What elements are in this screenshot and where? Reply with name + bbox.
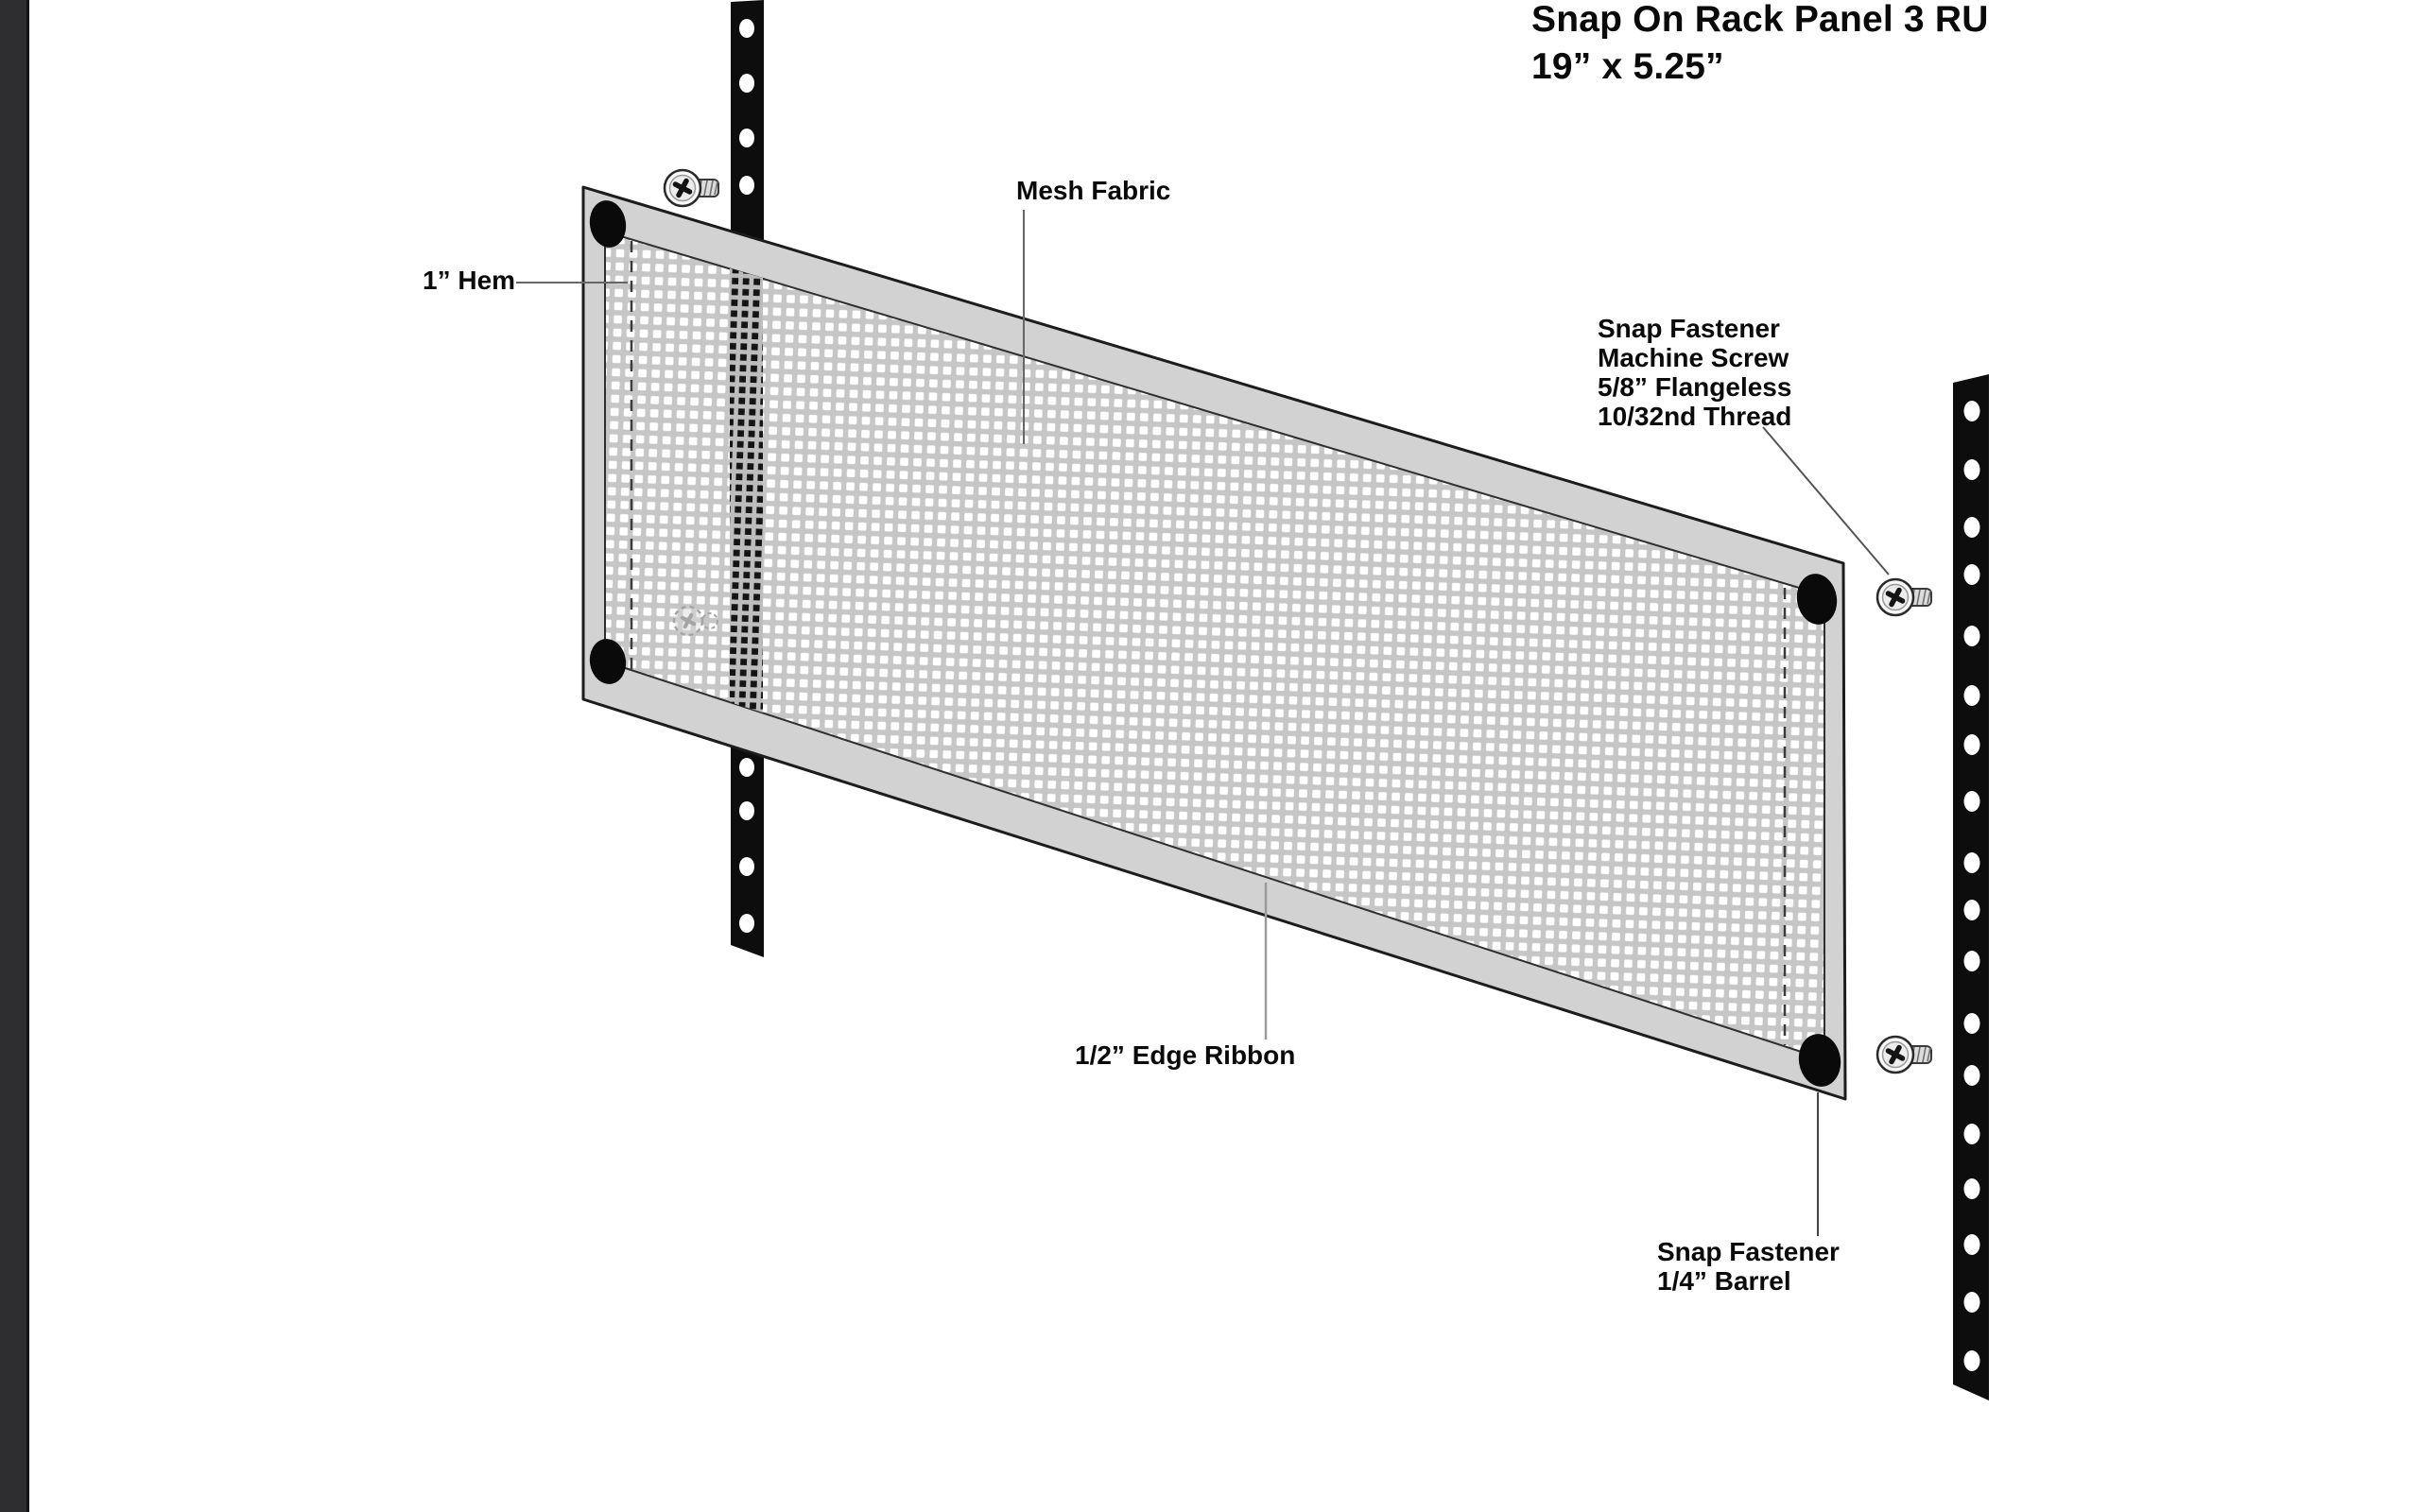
label-mesh-fabric: Mesh Fabric xyxy=(1016,176,1170,205)
rail-through-mesh xyxy=(730,268,763,713)
right-rack-rail xyxy=(1953,374,1989,1400)
machine-screw-right-bottom-icon xyxy=(1877,1037,1931,1073)
label-edge-ribbon: 1/2” Edge Ribbon xyxy=(1075,1040,1295,1070)
machine-screw-right-top-icon xyxy=(1877,579,1931,615)
machine-screw-top-left-icon xyxy=(665,170,718,206)
label-hem: 1” Hem xyxy=(423,266,515,295)
rack-panel-diagram xyxy=(0,0,2420,1512)
diagram-title: Snap On Rack Panel 3 RU 19” x 5.25” xyxy=(1531,0,1989,91)
label-snap-fastener-barrel: Snap Fastener 1/4” Barrel xyxy=(1657,1237,1840,1296)
diagram-stage: Snap On Rack Panel 3 RU 19” x 5.25” 1” H… xyxy=(0,0,2420,1512)
label-snap-fastener-machine-screw: Snap Fastener Machine Screw 5/8” Flangel… xyxy=(1598,314,1791,431)
